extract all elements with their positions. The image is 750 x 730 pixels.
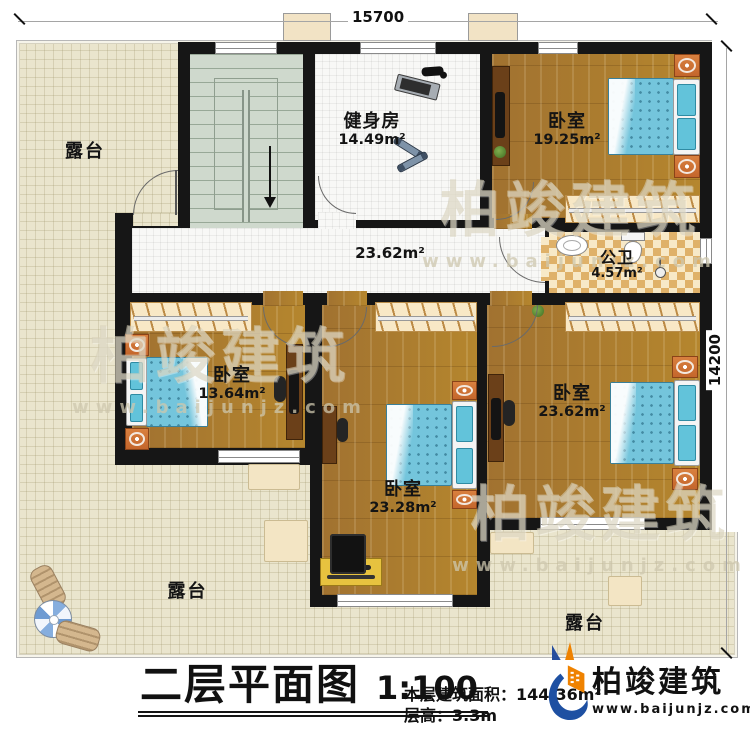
bedroom-right-area: 23.62m² [512, 404, 632, 420]
chimney [283, 13, 331, 41]
room-label-bedroom-left: 卧室 13.64m² [172, 366, 292, 402]
office-chair [337, 418, 348, 442]
door-mat [264, 520, 308, 562]
nightstand [672, 468, 698, 490]
stairs-direction-line [269, 146, 271, 198]
bedroom-center-name: 卧室 [343, 480, 463, 500]
drawing-title: 二层平面图 [140, 664, 360, 706]
bed-headboard [452, 401, 477, 489]
window [538, 42, 578, 54]
room-label-terrace-tl: 露台 [40, 142, 130, 162]
brand-url: www.baijunjz.com [592, 702, 750, 717]
bedroom-center-area: 23.28m² [343, 500, 463, 516]
stairs-direction-arrow-icon [264, 197, 276, 208]
bed-headboard [126, 358, 147, 426]
gym-name: 健身房 [312, 112, 432, 132]
room-label-bathroom: 公卫 4.57m² [577, 249, 657, 281]
wardrobe [130, 302, 252, 332]
room-label-terrace-br: 露台 [535, 614, 635, 634]
bed-headboard [674, 380, 700, 466]
bedroom-left-area: 13.64m² [172, 386, 292, 402]
margin-cover [712, 38, 750, 532]
floor-plan-page: 柏竣建筑 www.baijunjz.com 柏竣建筑 www.baijunjz.… [0, 0, 750, 730]
bedroom-tr-name: 卧室 [507, 112, 627, 132]
room-label-bedroom-center: 卧室 23.28m² [343, 480, 463, 516]
room-label-terrace-bl: 露台 [140, 582, 235, 602]
door-leaf [175, 170, 177, 215]
door-opening [263, 291, 303, 306]
nightstand [452, 381, 477, 400]
window [360, 42, 436, 54]
dimension-top-value: 15700 [348, 8, 408, 26]
room-label-hallway: 23.62m² [340, 245, 440, 262]
door-mat [608, 576, 642, 606]
dimension-line-right [726, 48, 727, 654]
bedroom-right-name: 卧室 [512, 384, 632, 404]
window [215, 42, 277, 54]
caption-bar: 二层平面图 1:100 本层建筑面积：144.36m² 层高：3.3m 柏竣建筑… [0, 660, 750, 730]
monitor [491, 398, 501, 440]
hallway-floor [132, 228, 545, 293]
chimney [468, 13, 518, 41]
nightstand [672, 356, 698, 378]
plant-icon [494, 146, 506, 158]
stairs-handrail [242, 90, 250, 222]
gym-area: 14.49m² [312, 132, 432, 148]
room-label-bedroom-right: 卧室 23.62m² [512, 384, 632, 420]
door-opening [318, 212, 356, 229]
sliding-door [540, 517, 645, 530]
door-mat [248, 464, 300, 490]
piano-icon [330, 534, 366, 574]
dimension-tick [13, 13, 25, 25]
nightstand [674, 155, 700, 178]
dimension-tick [705, 13, 717, 25]
bathroom-area: 4.57m² [577, 267, 657, 282]
door-opening [327, 291, 367, 306]
window [337, 594, 453, 607]
desk [322, 406, 337, 464]
dimension-right-value: 14200 [706, 330, 724, 390]
double-bed [386, 404, 452, 486]
nightstand [125, 334, 149, 356]
door-opening [490, 291, 532, 306]
window [218, 450, 300, 463]
bathroom-name: 公卫 [577, 249, 657, 267]
wardrobe [565, 302, 700, 332]
room-label-gym: 健身房 14.49m² [312, 112, 432, 148]
bedroom-left-name: 卧室 [172, 366, 292, 386]
brand-name: 柏竣建筑 [592, 668, 724, 698]
bedroom-tr-area: 19.25m² [507, 132, 627, 148]
nightstand [674, 54, 700, 77]
monitor [495, 92, 505, 138]
nightstand [125, 428, 149, 450]
logo-icon [543, 664, 589, 722]
wardrobe [565, 195, 700, 223]
window [700, 238, 712, 264]
bed-headboard [673, 79, 700, 155]
door-mat [490, 532, 534, 554]
wardrobe [375, 302, 477, 332]
room-label-bedroom-tr: 卧室 19.25m² [507, 112, 627, 148]
